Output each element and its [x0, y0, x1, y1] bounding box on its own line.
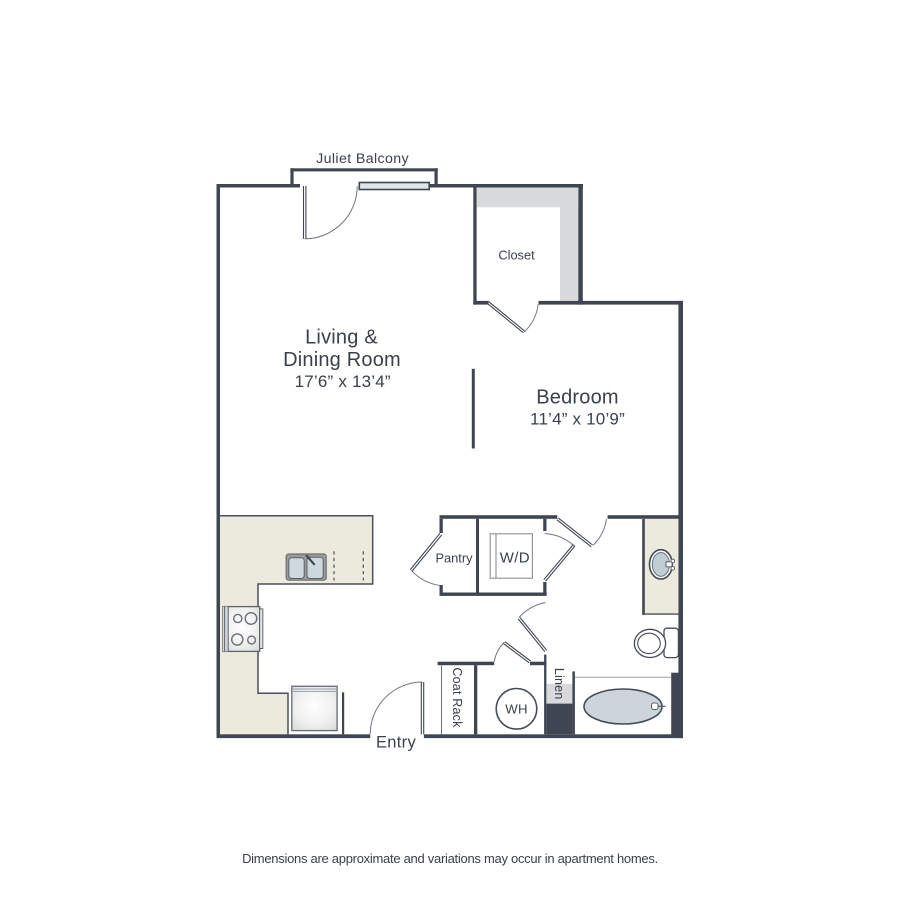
- svg-text:Pantry: Pantry: [436, 550, 474, 565]
- svg-text:Closet: Closet: [498, 247, 535, 262]
- svg-text:11’4” x 10’9”: 11’4” x 10’9”: [530, 410, 625, 429]
- svg-text:17’6” x 13’4”: 17’6” x 13’4”: [295, 372, 391, 391]
- svg-text:Coat Rack: Coat Rack: [450, 667, 464, 728]
- svg-text:Bedroom: Bedroom: [536, 387, 619, 409]
- svg-text:Dimensions are approximate and: Dimensions are approximate and variation…: [242, 851, 658, 866]
- svg-text:Linen: Linen: [552, 668, 566, 700]
- svg-text:Living &: Living &: [305, 327, 378, 349]
- svg-text:W/D: W/D: [500, 550, 530, 567]
- svg-text:Entry: Entry: [376, 733, 416, 751]
- svg-text:WH: WH: [505, 702, 528, 717]
- svg-text:Dining Room: Dining Room: [283, 349, 401, 371]
- svg-text:Juliet Balcony: Juliet Balcony: [316, 151, 409, 167]
